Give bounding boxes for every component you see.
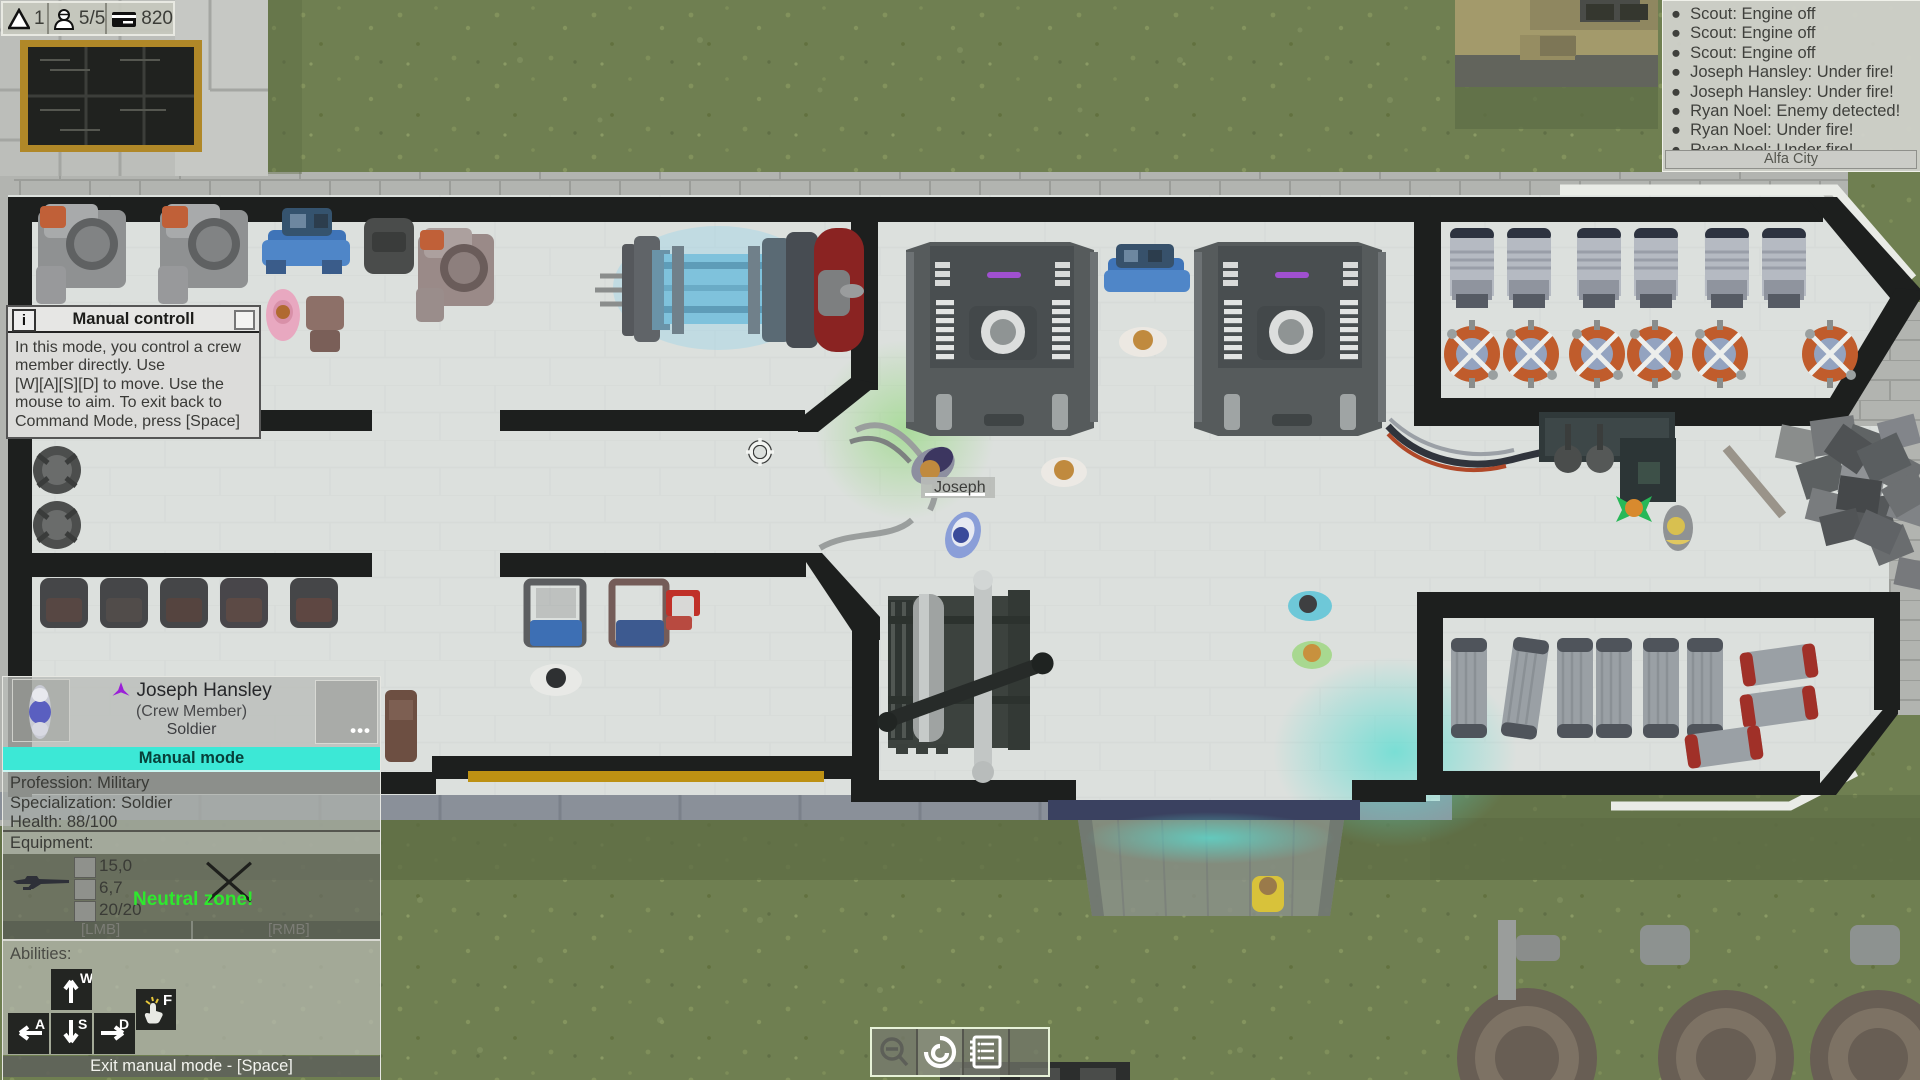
- svg-text:D: D: [119, 1016, 129, 1032]
- svg-text:S: S: [78, 1016, 87, 1032]
- svg-text:F: F: [163, 992, 172, 1009]
- svg-text:W: W: [80, 970, 92, 986]
- svg-text:A: A: [35, 1016, 45, 1032]
- svg-text:Joseph: Joseph: [934, 479, 986, 496]
